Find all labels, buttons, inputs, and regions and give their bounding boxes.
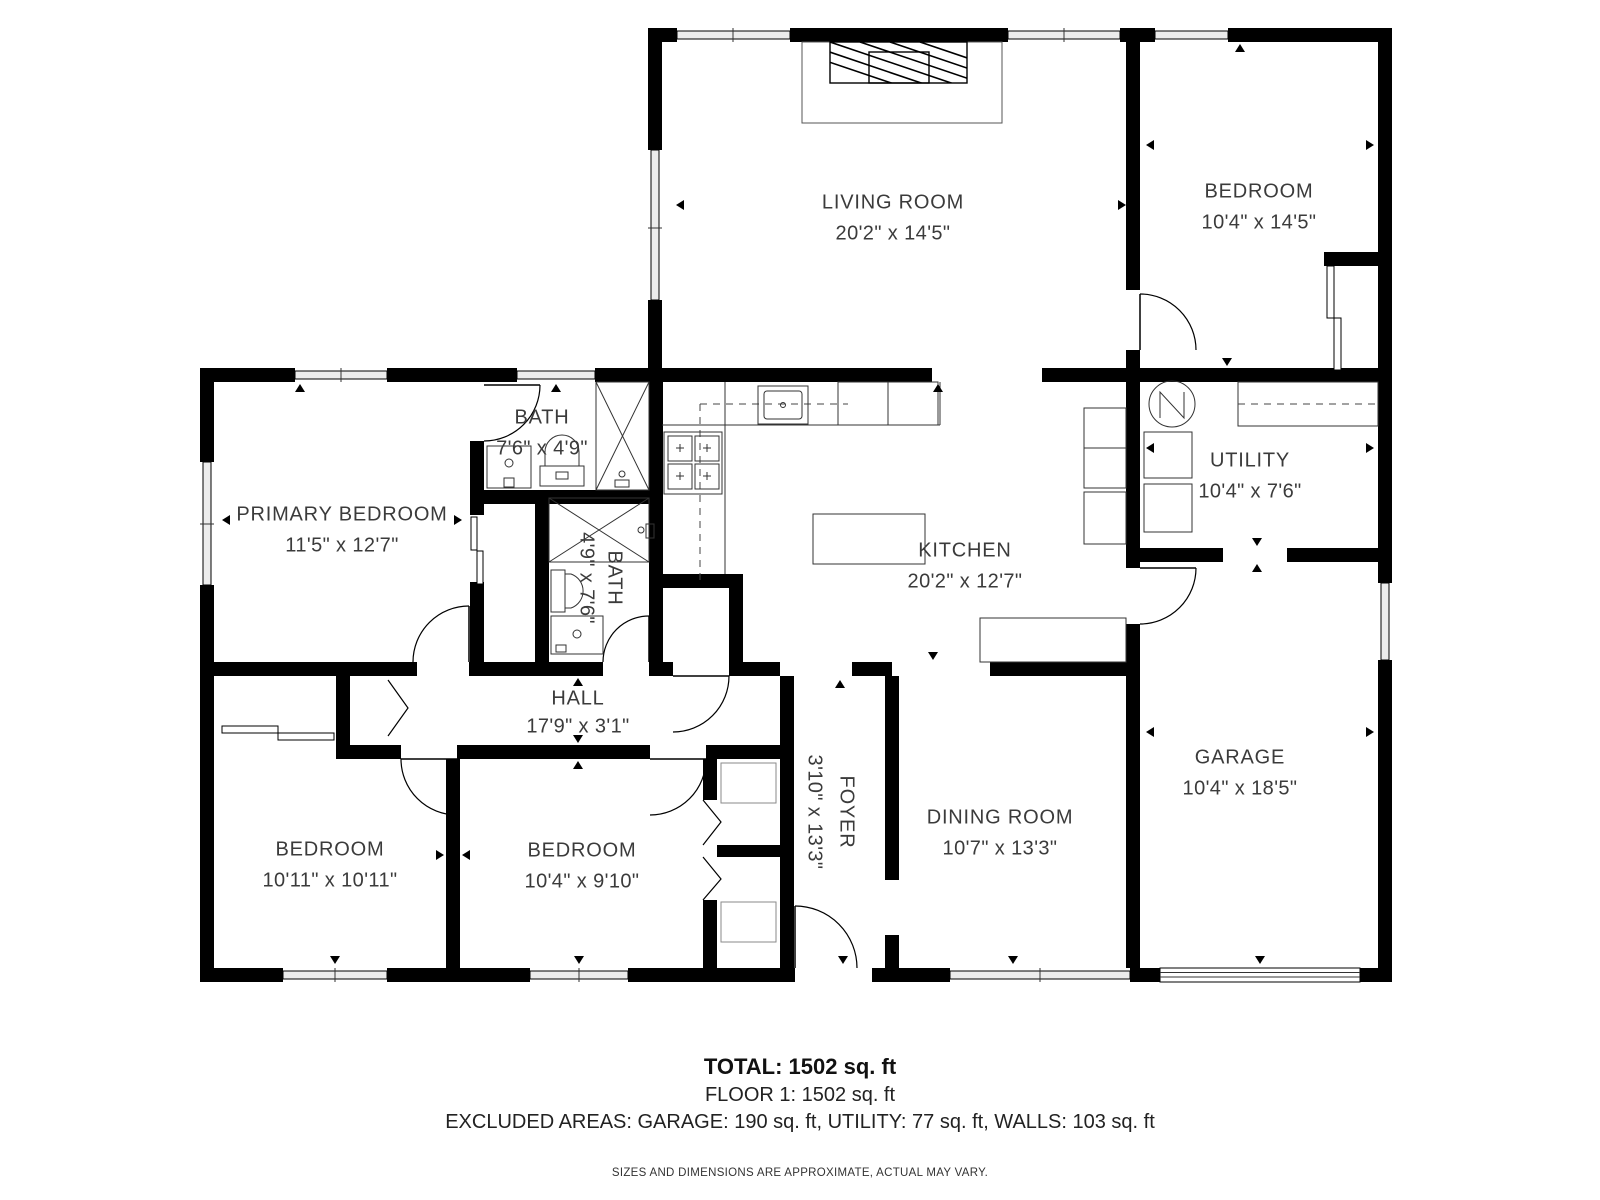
pantry-door [673,676,729,732]
window-living-left [648,150,662,300]
window-bedroom-bl-bottom [283,968,387,982]
room-dims-bedroom-tr: 10'4" x 14'5" [1202,211,1317,233]
window-primary-top-1 [295,368,387,382]
room-label-foyer: FOYER [836,776,858,849]
room-label-utility: UTILITY [1210,449,1290,471]
room-label-bedroom-tr: BEDROOM [1205,180,1314,202]
room-label-garage: GARAGE [1195,746,1285,768]
room-label-dining-room: DINING ROOM [927,806,1074,828]
window-garage-right [1381,583,1389,660]
bath2-shower-icon [549,498,654,562]
washer-icon [1144,432,1192,478]
kitchen-sink-icon [758,386,808,424]
room-dims-bedroom-bc: 10'4" x 9'10" [525,870,640,892]
window-primary-left [200,462,214,585]
room-label-primary-bedroom: PRIMARY BEDROOM [236,503,447,525]
primary-entry-door [413,606,469,662]
room-dims-utility: 10'4" x 7'6" [1198,480,1301,502]
hall-linen-bifold-door [388,680,408,736]
room-dims-kitchen: 20'2" x 12'7" [908,570,1023,592]
room-dims-primary-bedroom: 11'5" x 12'7" [285,534,398,556]
bedroom-bc-door [650,759,706,815]
window-bedroom-bc-bottom [530,968,628,982]
floor-area-text: FLOOR 1: 1502 sq. ft [705,1084,896,1106]
room-dims-hall: 17'9" x 3'1" [526,715,629,737]
window-living-top-right [1008,28,1120,42]
room-dims-dining-room: 10'7" x 13'3" [943,837,1058,859]
kitchen-cabinet [1084,492,1126,544]
bedroom-tr-door [1140,294,1196,350]
room-dims-bath2: 4'9" x 7'6" [576,532,598,624]
dryer-icon [1144,484,1192,532]
window-living-top-left [677,28,790,42]
front-door [795,906,857,968]
kitchen-island [813,514,925,564]
garage-entry-door [1140,568,1196,624]
disclaimer-text: SIZES AND DIMENSIONS ARE APPROXIMATE, AC… [612,1167,988,1179]
window-dining-bottom [950,968,1130,982]
bedroom-tr-closet-bypass-door [1327,266,1341,370]
room-dims-living-room: 20'2" x 14'5" [836,222,951,244]
room-dims-garage: 10'4" x 18'5" [1183,777,1298,799]
floor-plan-drawing: LIVING ROOM 20'2" x 14'5" BEDROOM 10'4" … [0,0,1600,1200]
room-dims-foyer: 3'10" x 13'3" [804,755,826,870]
room-label-kitchen: KITCHEN [918,539,1011,561]
garage-door [1160,968,1360,982]
refrigerator-icon [1084,408,1126,488]
bath1-shower-icon [596,382,649,490]
footer: TOTAL: 1502 sq. ft FLOOR 1: 1502 sq. ft … [445,1054,1155,1179]
floor-plan-page: LIVING ROOM 20'2" x 14'5" BEDROOM 10'4" … [0,0,1600,1200]
room-label-bath2: BATH [604,550,626,605]
kitchen-counter-se [980,618,1126,662]
primary-closet-bypass-door [471,517,483,584]
window-primary-top-2 [517,371,595,379]
room-dims-bath1: 7'6" x 4'9" [496,437,588,459]
room-label-living-room: LIVING ROOM [822,191,964,213]
room-label-hall: HALL [551,687,604,709]
bedroom-bl-closet-bypass-door [222,726,334,740]
kitchen-cooktop-icon [664,432,722,494]
total-area-text: TOTAL: 1502 sq. ft [704,1054,897,1079]
room-label-bath1: BATH [514,406,569,428]
room-dims-bedroom-bl: 10'11" x 10'11" [263,869,398,891]
room-label-bedroom-bl: BEDROOM [276,838,385,860]
hall-bath-door [603,616,649,662]
water-heater-icon [1149,381,1195,427]
room-label-bedroom-bc: BEDROOM [528,839,637,861]
window-bedroom-top [1155,31,1228,39]
fireplace-icon [770,42,1056,123]
kitchen-counter [662,382,940,586]
utility-counter [1238,382,1378,426]
excluded-areas-text: EXCLUDED AREAS: GARAGE: 190 sq. ft, UTIL… [445,1111,1155,1133]
